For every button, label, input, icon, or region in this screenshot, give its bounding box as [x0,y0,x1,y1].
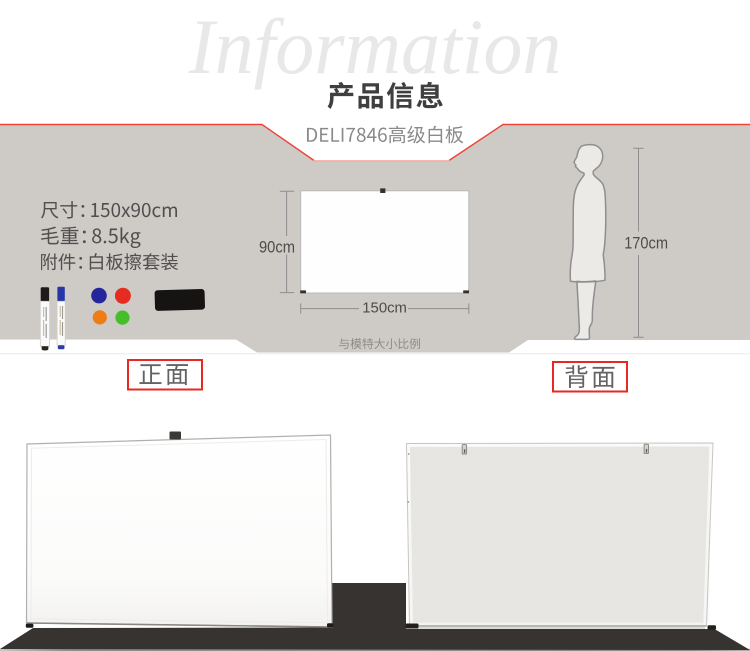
svg-text:150cm: 150cm [362,299,407,316]
svg-text:90cm: 90cm [259,238,295,256]
svg-text:Information: Information [188,3,562,90]
svg-text:170cm: 170cm [624,234,668,253]
